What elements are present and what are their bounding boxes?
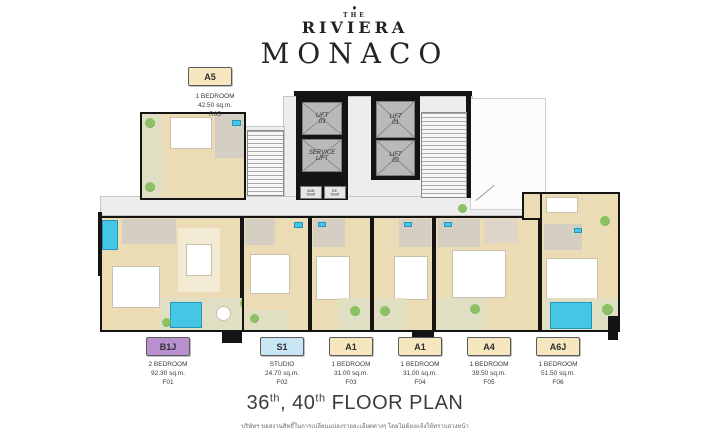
ee-shaft-label: EE Shaft bbox=[331, 189, 339, 196]
sink-icon bbox=[444, 222, 452, 227]
sink-icon bbox=[404, 222, 412, 227]
unit-s1-bathroom bbox=[245, 219, 275, 245]
unit-a4-bed bbox=[452, 250, 506, 298]
floor-number-1: 36 bbox=[247, 392, 270, 414]
unit-label-box-b1j: B1J bbox=[146, 337, 190, 356]
unit-b1j-bathtub bbox=[102, 220, 118, 250]
ordinal-1: th bbox=[270, 392, 280, 404]
plant-icon bbox=[600, 216, 610, 226]
unit-code: F01 bbox=[113, 378, 223, 387]
sink-icon bbox=[318, 222, 326, 227]
sink-icon bbox=[232, 120, 241, 126]
ordinal-2: th bbox=[315, 392, 325, 404]
staircase-left bbox=[247, 130, 284, 196]
unit-a6j-dining bbox=[546, 197, 578, 213]
page: ♦ THE RIVIERA MONACO LIFT 03 SERVICE LIF… bbox=[0, 0, 710, 435]
unit-b1j-bathroom bbox=[122, 219, 176, 244]
jacuzzi-icon bbox=[550, 302, 592, 329]
round-table-icon bbox=[216, 306, 231, 321]
sink-icon bbox=[294, 222, 303, 228]
unit-label-box-a1-f04: A1 bbox=[398, 337, 442, 356]
unit-area: 42.50 sq.m. bbox=[160, 101, 270, 110]
san-shaft: SAN Shaft bbox=[300, 186, 322, 199]
unit-a1-f04-balcony bbox=[375, 298, 406, 330]
floor-plan-title: 36th, 40th FLOOR PLAN bbox=[0, 392, 710, 415]
unit-b1j-table bbox=[186, 244, 212, 276]
lift-01-label: LIFT 01 bbox=[389, 114, 401, 126]
plant-icon bbox=[470, 304, 480, 314]
disclaimer-text: บริษัทฯ ขอสงวนสิทธิ์ในการเปลี่ยนแปลงรายล… bbox=[0, 421, 710, 431]
unit-label-box-a6j: A6J bbox=[536, 337, 580, 356]
plant-icon bbox=[458, 204, 467, 213]
unit-a1-f04-bed bbox=[394, 256, 428, 300]
san-shaft-label: SAN Shaft bbox=[307, 189, 315, 196]
plant-icon bbox=[145, 182, 155, 192]
unit-b1j-bed bbox=[112, 266, 160, 308]
unit-a1-f03-bed bbox=[316, 256, 350, 300]
ee-shaft: EE Shaft bbox=[324, 186, 346, 199]
unit-s1-bed bbox=[250, 254, 290, 294]
title-rest: FLOOR PLAN bbox=[326, 392, 464, 414]
plant-icon bbox=[350, 306, 360, 316]
sink-icon bbox=[574, 228, 582, 233]
unit-info-a5: 1 BEDROOM 42.50 sq.m. R05 bbox=[160, 92, 270, 119]
unit-type: 1 BEDROOM bbox=[503, 360, 613, 369]
unit-label-box-s1: S1 bbox=[260, 337, 304, 356]
plant-icon bbox=[250, 314, 259, 323]
plant-icon bbox=[145, 118, 155, 128]
unit-label-box-a5: A5 bbox=[188, 67, 232, 86]
lift-02-label: LIFT 02 bbox=[389, 152, 401, 164]
unit-code: R05 bbox=[160, 110, 270, 119]
service-lift-label: SERVICE LIFT bbox=[309, 150, 335, 162]
unit-info-a6j: 1 BEDROOM 51.50 sq.m. F06 bbox=[503, 360, 613, 387]
service-lift: SERVICE LIFT bbox=[302, 139, 342, 172]
unit-a6j-bed bbox=[546, 258, 598, 302]
wall-stub bbox=[222, 330, 242, 343]
plant-icon bbox=[602, 304, 613, 315]
staircase-right bbox=[421, 112, 467, 198]
unit-a5-bed bbox=[170, 117, 212, 149]
unit-a4-kitchen bbox=[484, 219, 518, 243]
floor-number-2: , 40 bbox=[280, 392, 315, 414]
unit-type: 2 BEDROOM bbox=[113, 360, 223, 369]
unit-area: 92.30 sq.m. bbox=[113, 369, 223, 378]
unit-info-b1j: 2 BEDROOM 92.30 sq.m. F01 bbox=[113, 360, 223, 387]
unit-a4-balcony bbox=[438, 298, 486, 330]
lift-01: LIFT 01 bbox=[376, 101, 415, 138]
unit-label-box-a1-f03: A1 bbox=[329, 337, 373, 356]
lift-02: LIFT 02 bbox=[376, 140, 415, 176]
jacuzzi-icon bbox=[170, 302, 202, 328]
lift-03: LIFT 03 bbox=[302, 102, 342, 135]
unit-area: 51.50 sq.m. bbox=[503, 369, 613, 378]
plant-icon bbox=[380, 306, 390, 316]
unit-type: 1 BEDROOM bbox=[160, 92, 270, 101]
lift-03-label: LIFT 03 bbox=[316, 113, 328, 125]
plant-icon bbox=[162, 318, 171, 327]
wall-stub bbox=[608, 316, 618, 340]
unit-label-box-a4: A4 bbox=[467, 337, 511, 356]
unit-code: F06 bbox=[503, 378, 613, 387]
